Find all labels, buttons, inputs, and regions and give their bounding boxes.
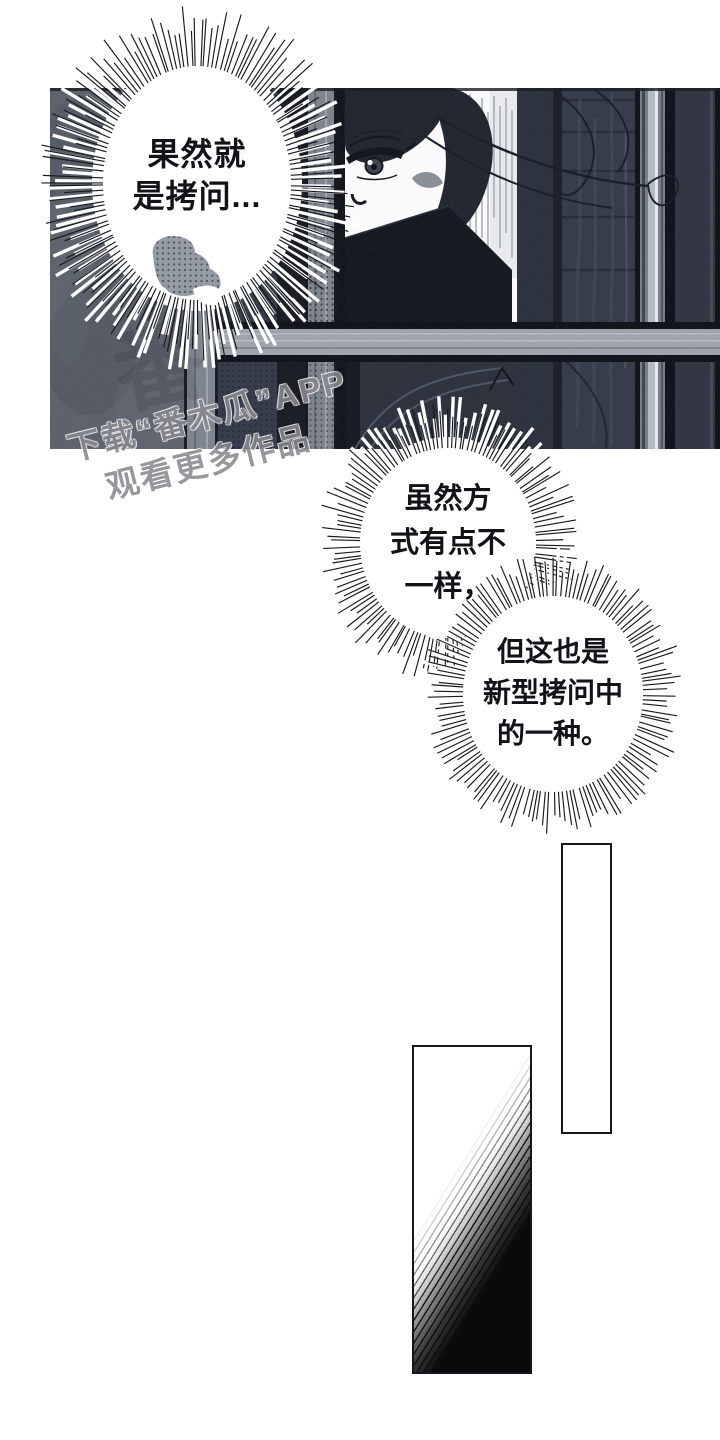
bubble-text-line: 式有点不	[348, 521, 548, 565]
bubble-text-line: 果然就	[97, 133, 297, 175]
bubble-text-line: 虽然方	[348, 477, 548, 521]
bubble-text-line: 新型拷问中	[453, 672, 653, 713]
bubble-2-text: 虽然方 式有点不 一样，	[348, 477, 548, 609]
bubble-text-line: 的一种。	[453, 713, 653, 754]
bubble-text-line: 但这也是	[453, 631, 653, 672]
hatched-panel	[412, 1045, 532, 1374]
bubble-3-text: 但这也是 新型拷问中 的一种。	[453, 631, 653, 754]
bubble-text-line: 是拷问...	[97, 175, 297, 217]
comic-page: 番 下载“番木瓜”APP 观看更多作品 果然就 是拷问... 虽然方 式有点不 …	[0, 0, 720, 1440]
empty-panel-tall	[561, 843, 612, 1134]
bubble-text-line: 一样，	[348, 565, 548, 609]
bubble-1-text: 果然就 是拷问...	[97, 133, 297, 217]
